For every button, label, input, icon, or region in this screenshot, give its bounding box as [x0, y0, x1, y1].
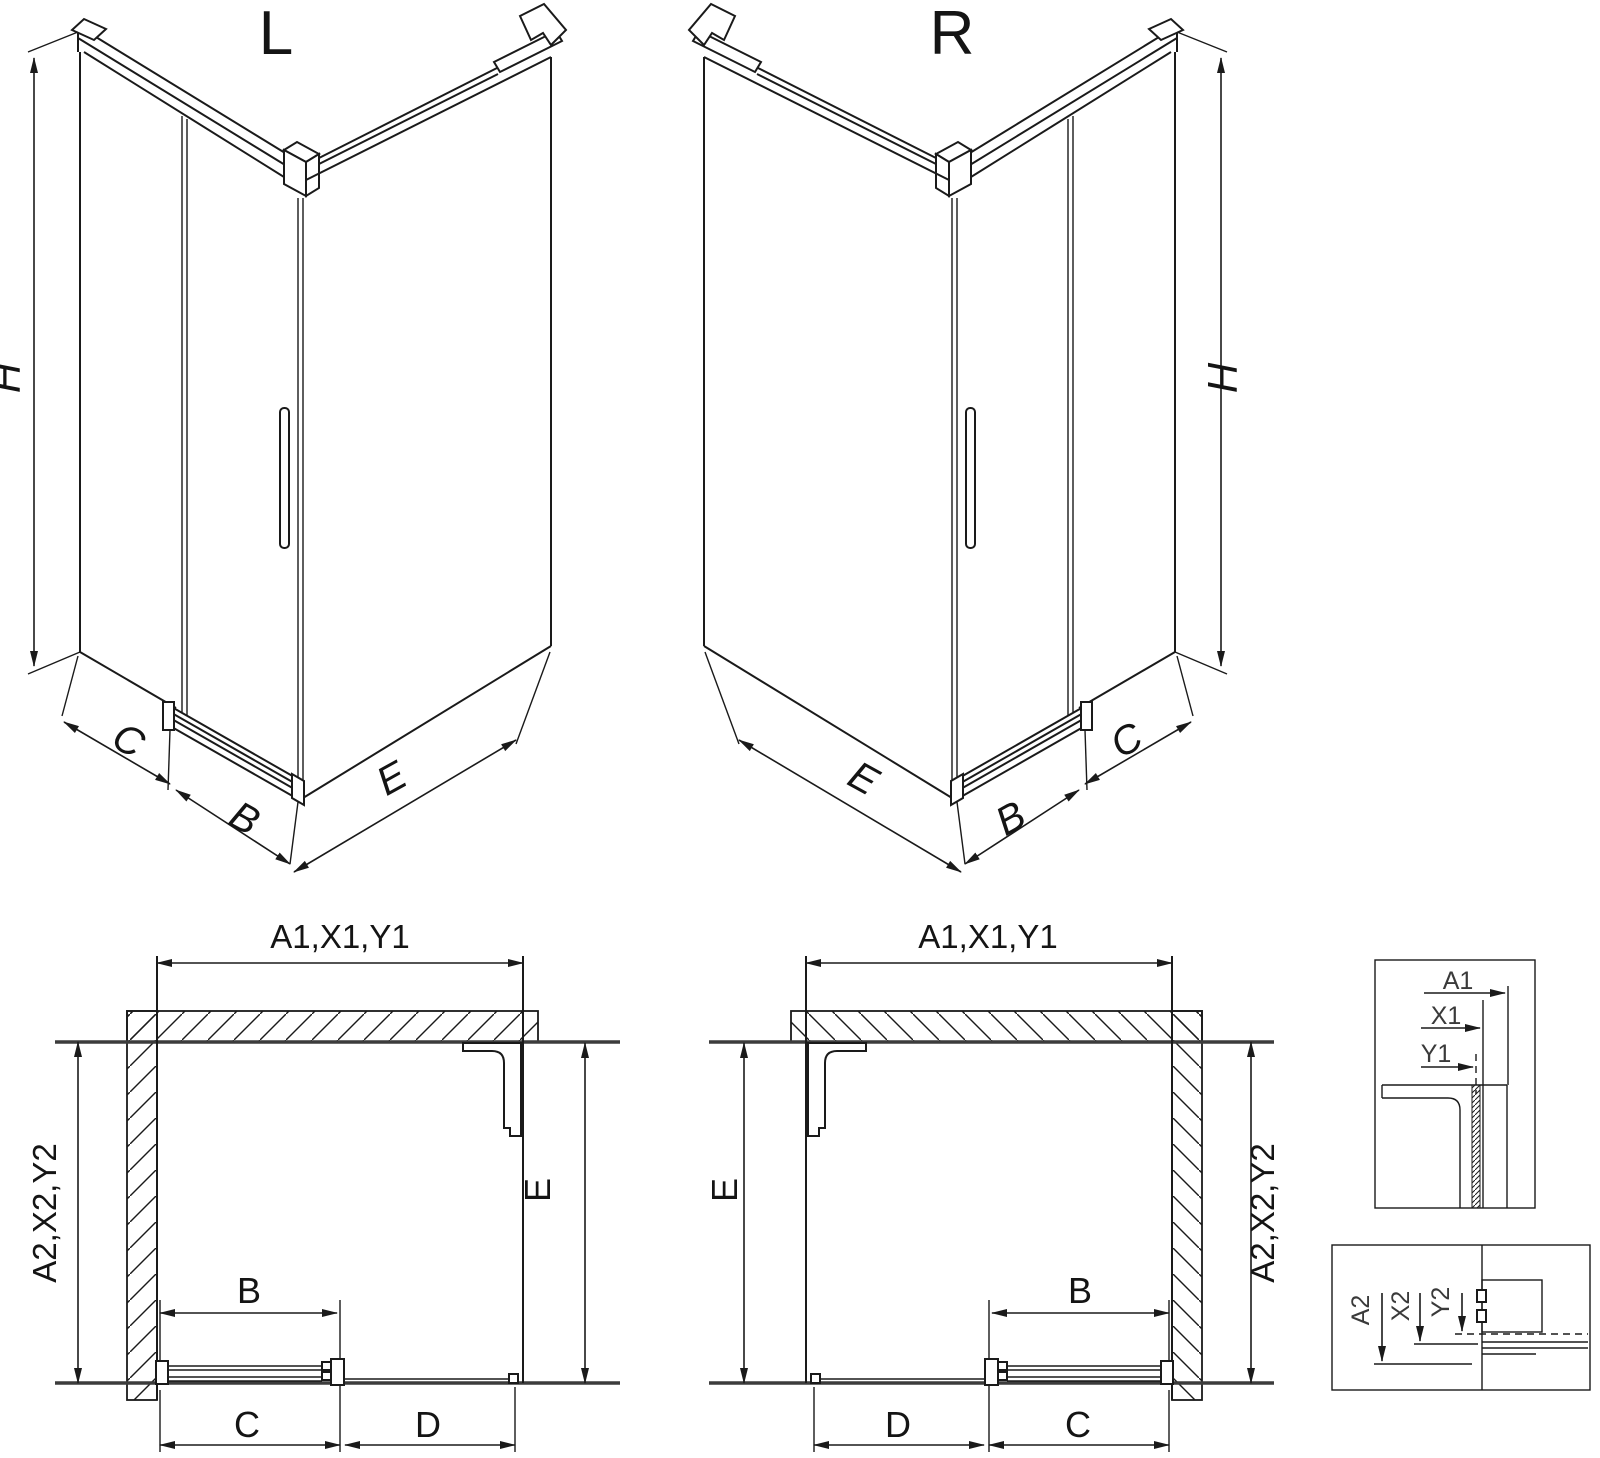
plan-right-dim-right-label: A2,X2,Y2	[1244, 1143, 1281, 1282]
plan-right-dim-top-label: A1,X1,Y1	[918, 918, 1057, 955]
plan-view-left: A1,X1,Y1 A2,X2,Y2 E B C D	[26, 918, 620, 1452]
shower-enclosure-drawing: L H C B E R H C B E A1,X1,Y1 A2,X2,Y2 E …	[0, 0, 1600, 1458]
plan-left-dim-e-label: E	[517, 1178, 558, 1202]
iso-right-dim-h-label: H	[1199, 362, 1246, 393]
iso-left-dim-c-label: C	[105, 714, 153, 767]
detail-x2-label: X2	[1387, 1291, 1415, 1322]
plan-right-dim-c-label: C	[1065, 1404, 1091, 1445]
plan-view-right: A1,X1,Y1 A2,X2,Y2 E B D C	[704, 918, 1281, 1452]
detail-box-top: A1 X1 Y1	[1375, 960, 1535, 1208]
plan-left-dim-left-label: A2,X2,Y2	[26, 1143, 63, 1282]
detail-a1-label: A1	[1443, 967, 1474, 995]
iso-left-title: L	[259, 0, 293, 68]
iso-right-title: R	[930, 0, 975, 68]
plan-left-dim-b-label: B	[237, 1270, 261, 1311]
technical-drawing-sheet: L H C B E R H C B E A1,X1,Y1 A2,X2,Y2 E …	[0, 0, 1600, 1458]
plan-right-dim-b-label: B	[1068, 1270, 1092, 1311]
plan-right-dim-d-label: D	[885, 1404, 911, 1445]
plan-left-dim-top-label: A1,X1,Y1	[270, 918, 409, 955]
detail-x1-label: X1	[1431, 1002, 1462, 1030]
detail-a2-label: A2	[1347, 1295, 1375, 1326]
iso-view-left: L H C B E	[0, 0, 566, 872]
iso-left-dim-h-label: H	[0, 362, 29, 393]
iso-right-dim-e-label: E	[841, 753, 887, 805]
detail-y1-label: Y1	[1421, 1040, 1452, 1068]
iso-right-dim-b-label: B	[988, 793, 1033, 844]
detail-y2-label: Y2	[1427, 1287, 1455, 1318]
plan-right-dim-e-label: E	[704, 1178, 745, 1202]
iso-right-dim-c-label: C	[1103, 714, 1151, 767]
plan-left-dim-d-label: D	[415, 1404, 441, 1445]
plan-left-dim-c-label: C	[234, 1404, 260, 1445]
detail-box-bottom: A2 X2 Y2	[1332, 1245, 1590, 1390]
iso-view-right: R H C B E	[689, 0, 1246, 872]
iso-left-dim-b-label: B	[222, 793, 267, 844]
iso-left-dim-e-label: E	[369, 752, 415, 804]
